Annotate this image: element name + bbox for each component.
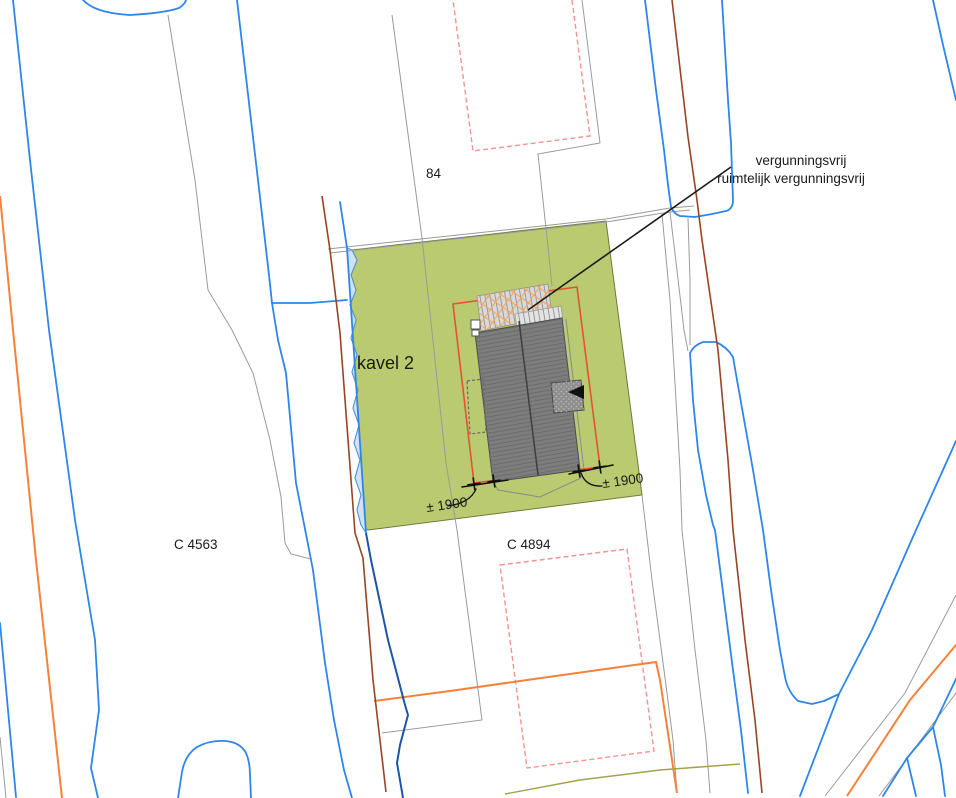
pink-rectangle-south [500,549,654,768]
annotation-line1: vergunningsvrij [756,153,847,168]
parcel-line-west [168,15,311,559]
plot-label: kavel 2 [357,353,414,373]
se-building-outline-c [907,758,916,796]
site-plan-drawing: 84 kavel 2 C 4563 C 4894 ± 1900 ± 1900 v… [0,0,956,798]
se-building-outline-a [883,679,956,796]
orange-road-diagonal [847,645,956,796]
olive-parcel-line [505,764,740,794]
track-edge-east-a [662,214,710,793]
track-edge-east-c [688,218,690,345]
se-building-outline-b [933,727,945,796]
parcel-line-sw-corner [0,737,6,798]
maroon-line-east [672,0,762,793]
parcel-label-c4563: C 4563 [174,537,218,552]
waterway-sw-short [0,623,16,797]
track-edge-east-b [642,495,677,793]
utility-box-a [471,320,480,329]
site-plan-canvas: 84 kavel 2 C 4563 C 4894 ± 1900 ± 1900 v… [0,0,956,798]
waterway-ne-corner [933,0,956,100]
pink-rectangle-north [453,0,590,151]
ditch-u-middle-west-branch [690,353,748,793]
road-edge-diagonal-a [825,595,956,796]
house-number-label: 84 [426,166,442,181]
utility-box-b [472,330,479,336]
annotation-line2: ruimtelijk vergunningsvrij [717,171,865,186]
waterway-west-long [13,0,99,798]
canal-diagonal-se [800,441,956,796]
parcel-label-c4894: C 4894 [507,537,551,552]
waterway-mid-west [237,0,352,798]
orange-line-far-west [0,196,62,798]
track-edge-east-d [670,212,688,351]
waterway-pond-top [83,0,186,15]
pond-south-center [178,741,251,798]
